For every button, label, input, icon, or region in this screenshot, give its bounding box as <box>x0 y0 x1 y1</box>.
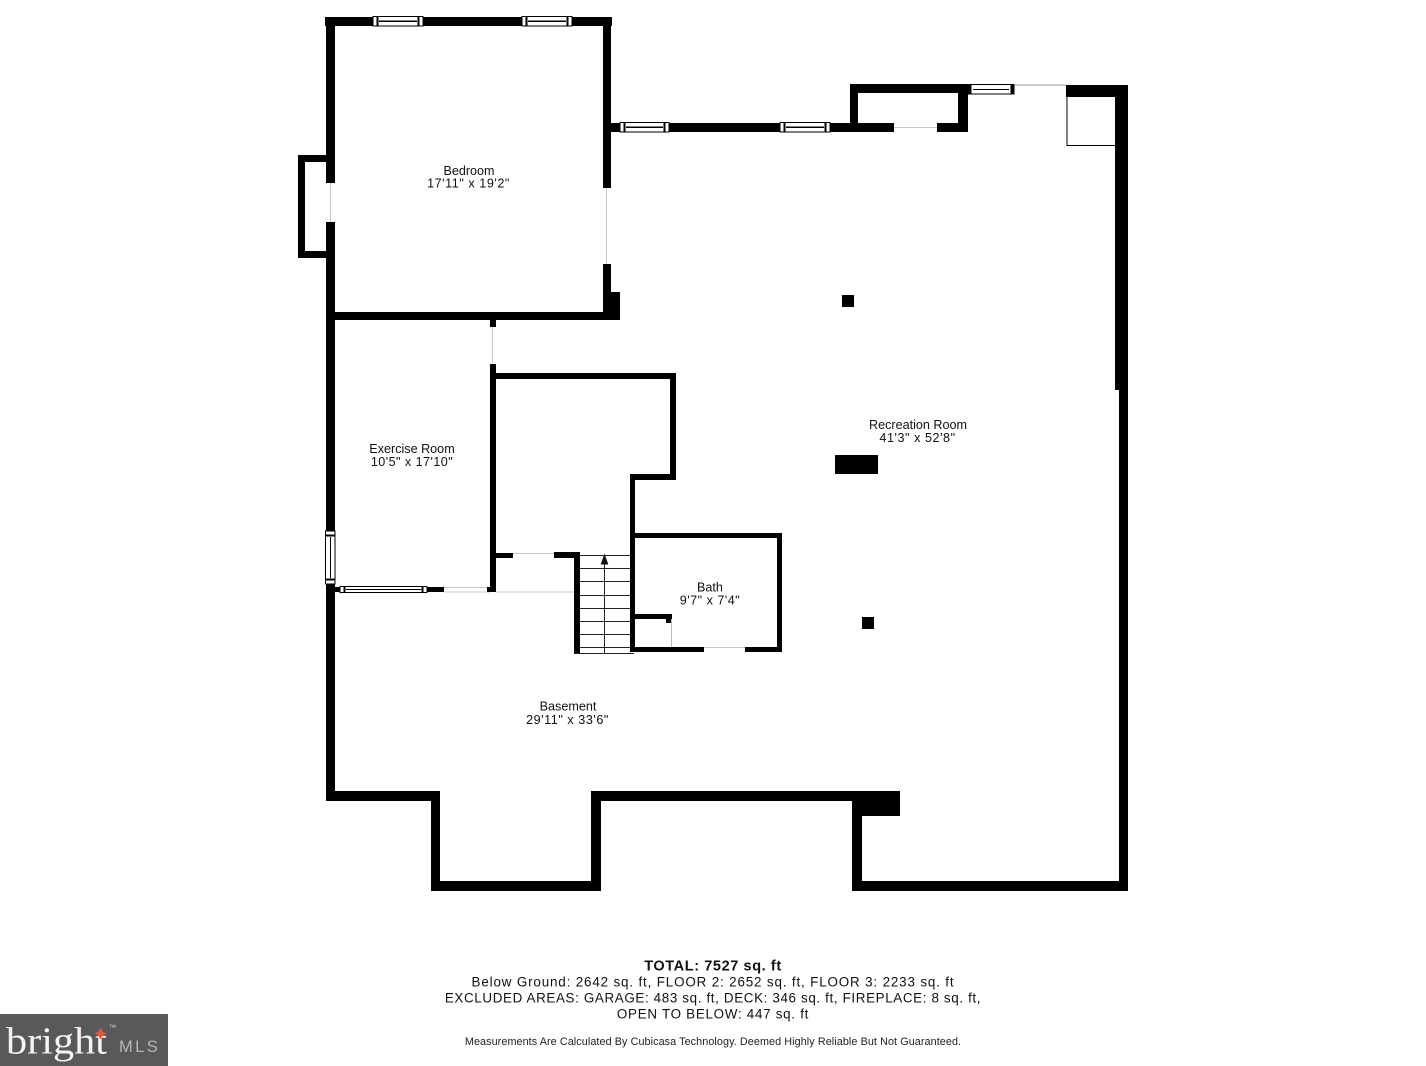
svg-text:TOTAL: 7527 sq. ft: TOTAL: 7527 sq. ft <box>644 959 782 975</box>
svg-text:10'5" x 17'10": 10'5" x 17'10" <box>371 455 453 469</box>
svg-text:OPEN TO BELOW: 447 sq. ft: OPEN TO BELOW: 447 sq. ft <box>617 1007 809 1022</box>
svg-text:EXCLUDED AREAS: GARAGE: 483 sq: EXCLUDED AREAS: GARAGE: 483 sq. ft, DECK… <box>445 991 981 1006</box>
svg-text:29'11" x 33'6": 29'11" x 33'6" <box>526 713 609 727</box>
svg-text:Bath: Bath <box>697 580 723 594</box>
svg-text:Measurements Are Calculated By: Measurements Are Calculated By Cubicasa … <box>465 1036 961 1048</box>
svg-text:bright: bright <box>6 1021 107 1063</box>
svg-text:9'7" x 7'4": 9'7" x 7'4" <box>680 593 741 607</box>
svg-text:Below Ground: 2642 sq. ft, FLO: Below Ground: 2642 sq. ft, FLOOR 2: 2652… <box>472 975 955 990</box>
svg-text:™: ™ <box>109 1025 116 1032</box>
svg-text:Basement: Basement <box>540 700 597 714</box>
svg-text:17'11" x 19'2": 17'11" x 19'2" <box>427 177 510 191</box>
svg-text:MLS: MLS <box>119 1038 160 1056</box>
svg-text:41'3" x 52'8": 41'3" x 52'8" <box>879 431 955 445</box>
